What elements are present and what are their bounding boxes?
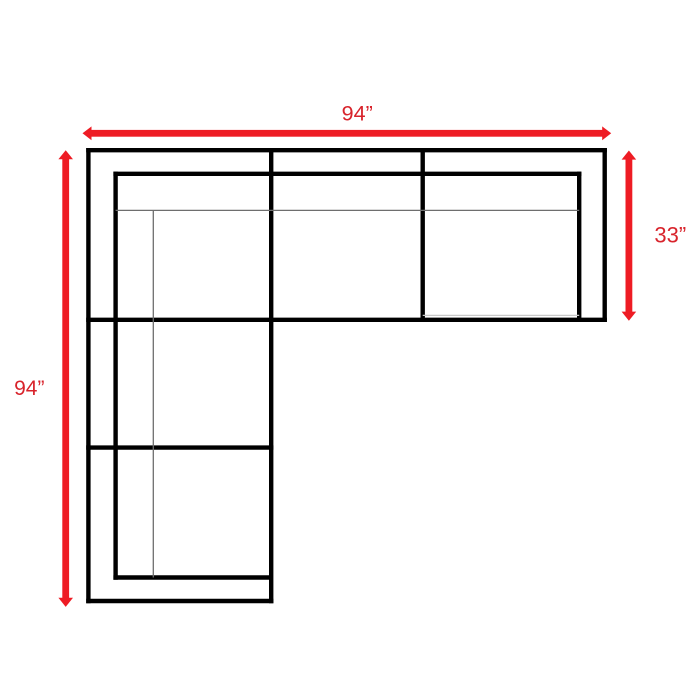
svg-text:33”: 33” xyxy=(654,222,686,247)
svg-text:94”: 94” xyxy=(342,102,373,126)
svg-text:94”: 94” xyxy=(14,377,44,400)
